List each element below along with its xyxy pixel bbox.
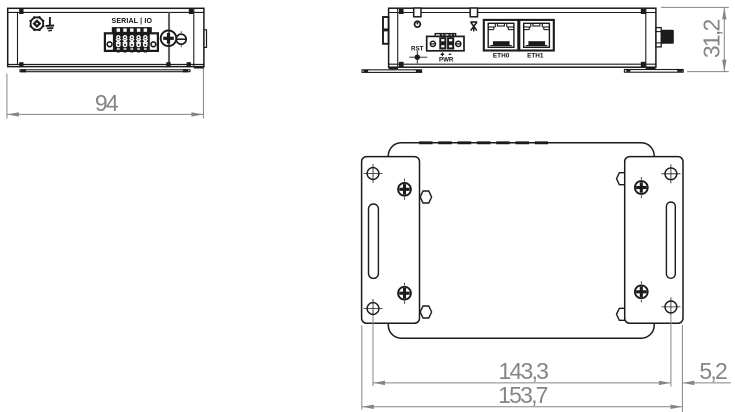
svg-text:ETH1: ETH1 bbox=[527, 53, 544, 60]
svg-text:31,2: 31,2 bbox=[698, 20, 724, 59]
svg-text:5,2: 5,2 bbox=[699, 358, 727, 384]
svg-text:PWR: PWR bbox=[439, 56, 454, 63]
svg-text:94: 94 bbox=[95, 90, 119, 116]
svg-text:SERIAL | IO: SERIAL | IO bbox=[112, 18, 153, 25]
svg-text:153,7: 153,7 bbox=[498, 382, 548, 408]
svg-text:ETH0: ETH0 bbox=[493, 53, 510, 60]
svg-text:143,3: 143,3 bbox=[499, 358, 549, 384]
